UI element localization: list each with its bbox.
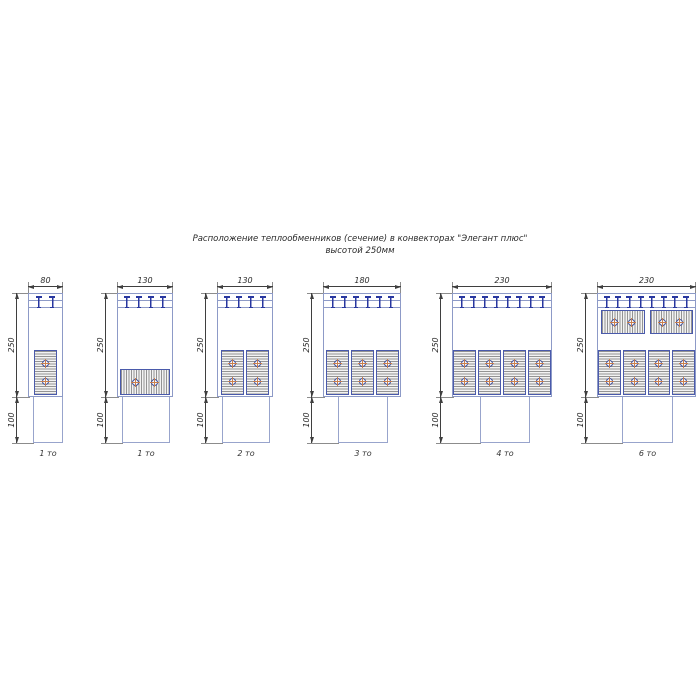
tube-circle: [658, 318, 667, 327]
tube-ring: [631, 360, 638, 367]
dimension-arrow-down: [310, 437, 314, 443]
tube-ring: [680, 378, 687, 385]
heat-exchanger-vertical: [672, 350, 695, 395]
grille-slat-icon: [604, 296, 610, 308]
tube-ring: [631, 378, 638, 385]
grille-slat-icon: [341, 296, 347, 308]
heat-exchanger-top-row: [601, 310, 693, 334]
dimension-arrow-up: [439, 397, 443, 403]
width-dimension: 230: [452, 276, 552, 293]
height-dimension-label: 250: [8, 337, 16, 352]
duct-height-dimension-label: 100: [197, 412, 205, 427]
tube-circle: [535, 359, 544, 368]
tube-ring: [359, 360, 366, 367]
title-line-2: высотой 250мм: [30, 245, 690, 257]
dimension-arrow-down: [584, 437, 588, 443]
height-dimension-label: 250: [97, 337, 105, 352]
convector-casing: [597, 293, 696, 397]
heat-exchanger-vertical: [376, 350, 399, 395]
grille-slat-icon: [330, 296, 336, 308]
dimension-arrow-right: [267, 285, 273, 289]
tube-ring: [254, 378, 261, 385]
title-line-1: Расположение теплообменников (сечение) в…: [30, 233, 690, 245]
extension-line: [436, 443, 481, 444]
dimension-arrow-up: [15, 293, 19, 299]
grille-slats: [221, 296, 269, 308]
tube-ring: [229, 360, 236, 367]
heat-exchanger-vertical: [503, 350, 526, 395]
tube-ring: [132, 379, 139, 386]
dimension-arrow-up: [15, 397, 19, 403]
diagram-caption: 6 то: [610, 450, 685, 458]
grille-slats: [32, 296, 59, 308]
grille-slat-icon: [672, 296, 678, 308]
grille-slat-icon: [148, 296, 154, 308]
tube-circle: [358, 377, 367, 386]
dimension-arrow-down: [439, 437, 443, 443]
convector-casing: [117, 293, 173, 397]
height-dimensions: 250100: [311, 293, 323, 443]
dimension-arrow-up: [584, 293, 588, 299]
tube-circle: [679, 359, 688, 368]
dimension-line: [16, 293, 17, 397]
width-dimension-label: 130: [107, 277, 183, 285]
grille-slats: [327, 296, 397, 308]
grille-slat-icon: [136, 296, 142, 308]
grille-slat-icon: [160, 296, 166, 308]
tube-ring: [42, 360, 49, 367]
duct-height-dimension-label: 100: [577, 412, 585, 427]
tube-ring: [655, 378, 662, 385]
extension-line: [581, 443, 623, 444]
grille-slat-icon: [388, 296, 394, 308]
dimension-arrow-up: [204, 293, 208, 299]
tube-circle: [333, 377, 342, 386]
heat-exchanger-vertical: [648, 350, 671, 395]
tube-circle: [150, 378, 159, 387]
grille-slat-icon: [505, 296, 511, 308]
tube-circle: [630, 377, 639, 386]
heat-exchanger-row: [29, 350, 62, 395]
tube-circle: [333, 359, 342, 368]
height-dimension-label: 250: [577, 337, 585, 352]
grille-slat-icon: [638, 296, 644, 308]
dimension-line: [440, 293, 441, 397]
dimension-line: [597, 286, 696, 287]
air-duct: [222, 397, 270, 443]
height-dimensions: 250100: [16, 293, 28, 443]
height-dimension-label: 250: [303, 337, 311, 352]
tube-circle: [253, 359, 262, 368]
tube-ring: [359, 378, 366, 385]
tube-ring: [42, 378, 49, 385]
grille-slat-icon: [528, 296, 534, 308]
width-dimension-label: 230: [587, 277, 700, 285]
heat-exchanger-row: [453, 350, 551, 395]
tube-ring: [486, 378, 493, 385]
tube-ring: [511, 360, 518, 367]
grille-slat-icon: [661, 296, 667, 308]
heat-exchanger-row: [598, 350, 695, 395]
grille-slat-icon: [248, 296, 254, 308]
duct-height-dimension-label: 100: [8, 412, 16, 427]
extension-line: [307, 443, 339, 444]
air-duct: [338, 397, 388, 443]
dimension-arrow-down: [204, 437, 208, 443]
convector-casing: [28, 293, 63, 397]
width-dimension: 130: [117, 276, 173, 293]
tube-ring: [511, 378, 518, 385]
tube-ring: [611, 319, 618, 326]
dimension-arrow-down: [104, 437, 108, 443]
duct-height-dimension-label: 100: [303, 412, 311, 427]
dimension-arrow-up: [439, 293, 443, 299]
tube-ring: [680, 360, 687, 367]
tube-circle: [383, 377, 392, 386]
tube-ring: [536, 378, 543, 385]
diagram-caption: 2 то: [210, 450, 282, 458]
grille-slat-icon: [260, 296, 266, 308]
tube-circle: [627, 318, 636, 327]
convector-casing: [217, 293, 273, 397]
extension-line: [12, 443, 34, 444]
tube-ring: [461, 378, 468, 385]
height-dimensions: 250100: [585, 293, 597, 443]
grille-slat-icon: [493, 296, 499, 308]
tube-circle: [679, 377, 688, 386]
tube-circle: [358, 359, 367, 368]
dimension-line: [205, 293, 206, 397]
convector-casing: [452, 293, 552, 397]
tube-circle: [228, 359, 237, 368]
grille-slat-icon: [224, 296, 230, 308]
tube-ring: [334, 378, 341, 385]
heat-exchanger-vertical: [246, 350, 269, 395]
tube-ring: [384, 378, 391, 385]
dimension-arrow-up: [310, 397, 314, 403]
heat-exchanger-vertical: [34, 350, 57, 395]
tube-circle: [654, 359, 663, 368]
grille-slat-icon: [649, 296, 655, 308]
grille-slat-icon: [615, 296, 621, 308]
dimension-arrow-right: [167, 285, 173, 289]
tube-circle: [485, 359, 494, 368]
heat-exchanger-vertical: [453, 350, 476, 395]
dimension-line: [311, 293, 312, 397]
dimension-line: [585, 293, 586, 397]
tube-circle: [675, 318, 684, 327]
tube-ring: [461, 360, 468, 367]
tube-circle: [131, 378, 140, 387]
dimension-line: [323, 286, 401, 287]
diagram-caption: 1 то: [110, 450, 182, 458]
width-dimension-label: 230: [442, 277, 562, 285]
duct-height-dimension-label: 100: [97, 412, 105, 427]
tube-circle: [228, 377, 237, 386]
extension-line: [101, 443, 123, 444]
tube-circle: [460, 359, 469, 368]
tube-ring: [628, 319, 635, 326]
width-dimension: 180: [323, 276, 401, 293]
heat-exchanger-horizontal: [650, 310, 694, 334]
dimension-line: [217, 286, 273, 287]
tube-ring: [151, 379, 158, 386]
heat-exchanger-horizontal: [120, 369, 170, 395]
grille-slat-icon: [516, 296, 522, 308]
dimension-arrow-right: [395, 285, 401, 289]
width-dimension-label: 180: [313, 277, 411, 285]
heat-exchanger-vertical: [478, 350, 501, 395]
dimension-arrow-right: [546, 285, 552, 289]
grille-slats: [121, 296, 169, 308]
grille-slat-icon: [683, 296, 689, 308]
grille-slats: [456, 296, 548, 308]
tube-ring: [486, 360, 493, 367]
grille-slat-icon: [539, 296, 545, 308]
grille-slat-icon: [482, 296, 488, 308]
air-duct: [122, 397, 170, 443]
grille-slat-icon: [365, 296, 371, 308]
tube-circle: [605, 359, 614, 368]
tube-circle: [654, 377, 663, 386]
dimension-arrow-up: [584, 397, 588, 403]
heat-exchanger-vertical: [351, 350, 374, 395]
air-duct: [480, 397, 530, 443]
dimension-arrow-right: [57, 285, 63, 289]
tube-circle: [510, 359, 519, 368]
width-dimension-label: 130: [207, 277, 283, 285]
height-dimension-label: 250: [197, 337, 205, 352]
heat-exchanger-vertical: [528, 350, 551, 395]
dimension-line: [105, 293, 106, 397]
tube-ring: [676, 319, 683, 326]
heat-exchanger-vertical: [326, 350, 349, 395]
height-dimension-label: 250: [432, 337, 440, 352]
tube-ring: [655, 360, 662, 367]
dimension-arrow-up: [310, 293, 314, 299]
grille-slat-icon: [36, 296, 42, 308]
air-duct: [33, 397, 63, 443]
dimension-arrow-up: [104, 293, 108, 299]
height-dimensions: 250100: [105, 293, 117, 443]
tube-circle: [630, 359, 639, 368]
width-dimension: 80: [28, 276, 63, 293]
tube-ring: [384, 360, 391, 367]
dimension-arrow-down: [15, 437, 19, 443]
grille-slat-icon: [124, 296, 130, 308]
tube-circle: [610, 318, 619, 327]
heat-exchanger-vertical: [221, 350, 244, 395]
grille-slat-icon: [459, 296, 465, 308]
dimension-arrow-up: [204, 397, 208, 403]
drawing-title: Расположение теплообменников (сечение) в…: [30, 233, 690, 258]
tube-ring: [254, 360, 261, 367]
drawing-canvas: Расположение теплообменников (сечение) в…: [0, 0, 700, 700]
dimension-arrow-left: [323, 285, 329, 289]
tube-circle: [41, 377, 50, 386]
dimension-arrow-left: [28, 285, 34, 289]
air-duct: [622, 397, 673, 443]
tube-ring: [606, 378, 613, 385]
dimension-line: [117, 286, 173, 287]
height-dimensions: 250100: [440, 293, 452, 443]
width-dimension-label: 80: [18, 277, 73, 285]
grille-slat-icon: [626, 296, 632, 308]
tube-circle: [383, 359, 392, 368]
dimension-arrow-left: [217, 285, 223, 289]
tube-ring: [229, 378, 236, 385]
width-dimension: 230: [597, 276, 696, 293]
grille-slat-icon: [353, 296, 359, 308]
tube-ring: [659, 319, 666, 326]
heat-exchanger-vertical: [623, 350, 646, 395]
tube-circle: [535, 377, 544, 386]
grille-slat-icon: [49, 296, 55, 308]
grille-slat-icon: [236, 296, 242, 308]
grille-slat-icon: [376, 296, 382, 308]
tube-circle: [510, 377, 519, 386]
dimension-arrow-left: [452, 285, 458, 289]
tube-circle: [605, 377, 614, 386]
grille-slat-icon: [470, 296, 476, 308]
diagram-caption: 3 то: [326, 450, 400, 458]
tube-ring: [606, 360, 613, 367]
width-dimension: 130: [217, 276, 273, 293]
heat-exchanger-row: [218, 350, 272, 395]
heat-exchanger-row: [324, 350, 400, 395]
grille-slats: [601, 296, 692, 308]
diagram-caption: 4 то: [468, 450, 542, 458]
tube-circle: [485, 377, 494, 386]
heat-exchanger-horizontal: [601, 310, 645, 334]
tube-ring: [334, 360, 341, 367]
convector-casing: [323, 293, 401, 397]
dimension-arrow-left: [117, 285, 123, 289]
heat-exchanger-vertical: [598, 350, 621, 395]
tube-circle: [253, 377, 262, 386]
dimension-line: [452, 286, 552, 287]
height-dimensions: 250100: [205, 293, 217, 443]
diagram-caption: 1 то: [21, 450, 75, 458]
dimension-arrow-up: [104, 397, 108, 403]
tube-circle: [41, 359, 50, 368]
dimension-arrow-left: [597, 285, 603, 289]
extension-line: [201, 443, 223, 444]
tube-circle: [460, 377, 469, 386]
duct-height-dimension-label: 100: [432, 412, 440, 427]
dimension-arrow-right: [690, 285, 696, 289]
tube-ring: [536, 360, 543, 367]
